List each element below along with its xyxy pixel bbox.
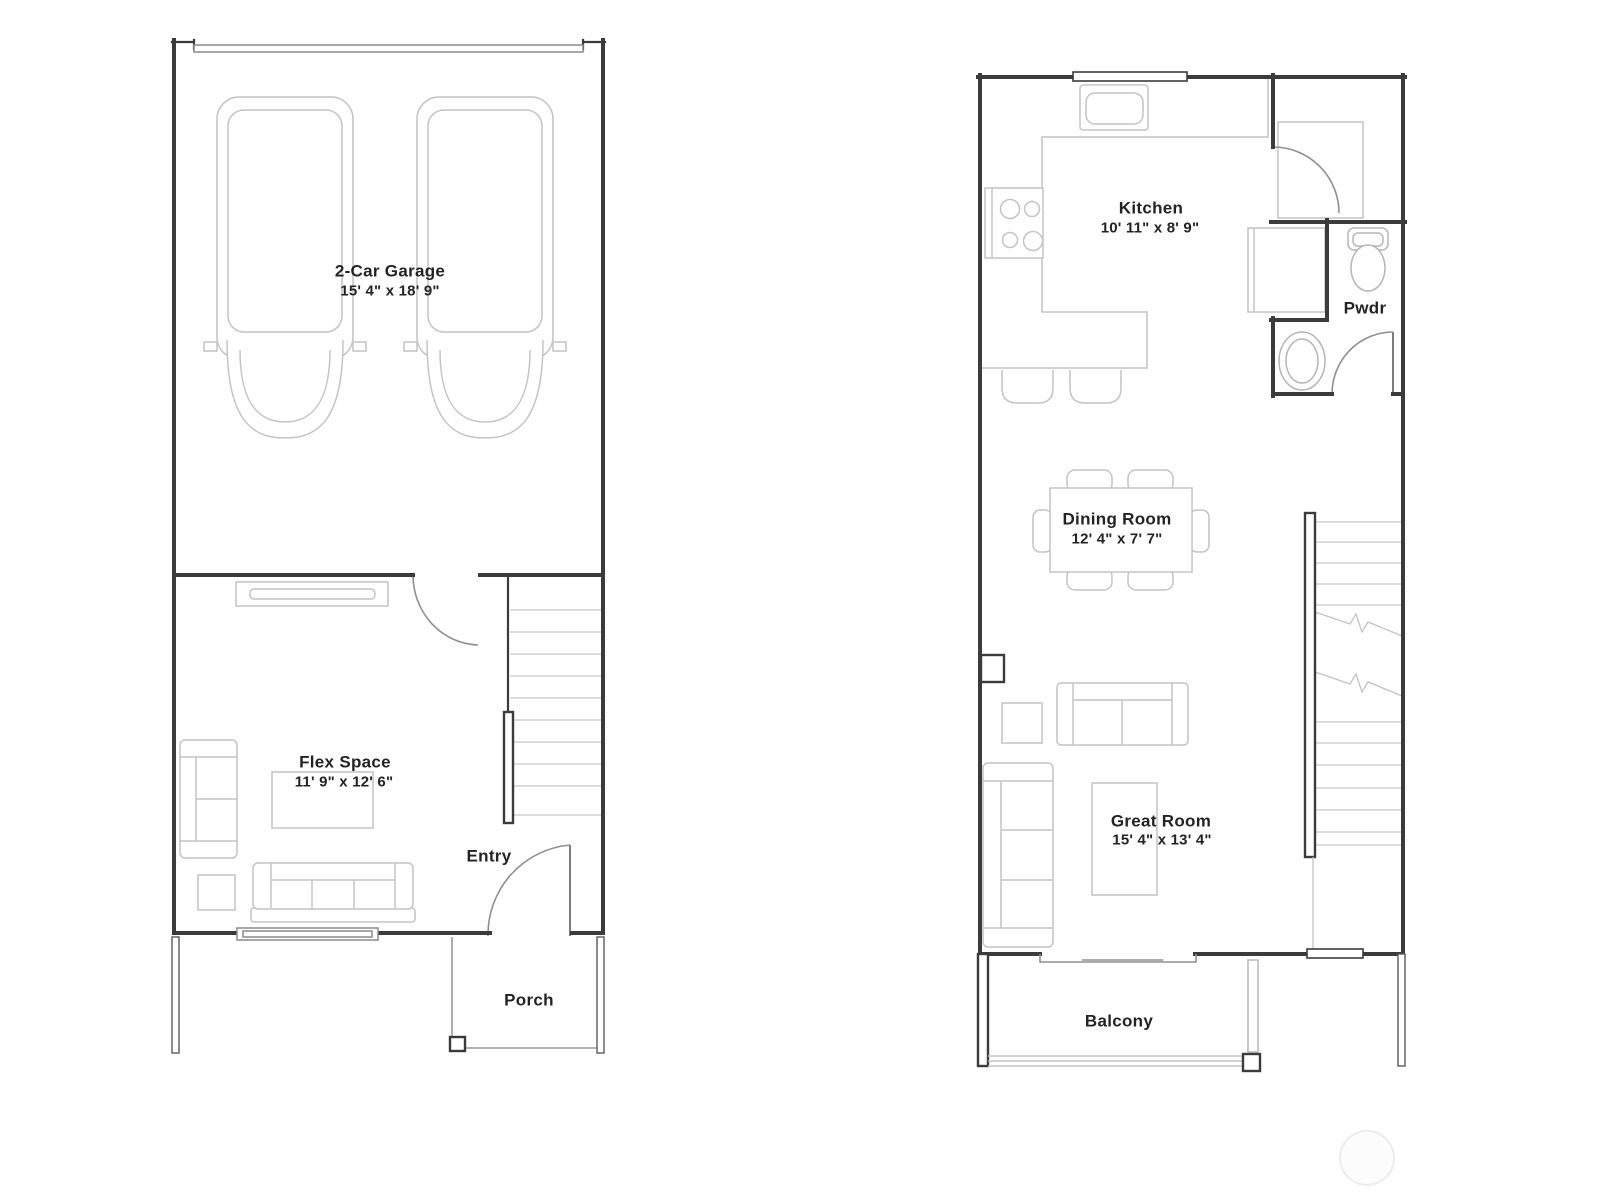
kitchen-dims: 10' 11" x 8' 9" <box>1101 220 1200 237</box>
stair-railing <box>504 712 513 823</box>
loveseat-icon <box>180 740 237 858</box>
garage-door <box>194 45 583 52</box>
great-room-label: Great Room <box>1111 812 1211 831</box>
kitchen-window <box>1073 72 1187 81</box>
flex-space-dims: 11' 9" x 12' 6" <box>295 774 394 791</box>
level-1-plan: 2-Car Garage 15' 4" x 18' 9" Flex Space … <box>172 40 605 1053</box>
entry-label: Entry <box>467 847 512 866</box>
dining-label: Dining Room <box>1062 510 1171 529</box>
great-room-window <box>1307 949 1363 958</box>
stairs <box>1305 513 1402 950</box>
stair-railing <box>1305 513 1315 857</box>
dining-dims: 12' 4" x 7' 7" <box>1072 531 1163 548</box>
watermark-circle <box>1340 1131 1394 1185</box>
stairs <box>504 577 601 823</box>
balcony-corner-post <box>1243 1054 1260 1071</box>
stair-break-line <box>1315 672 1402 696</box>
great-room-dims: 15' 4" x 13' 4" <box>1112 832 1211 849</box>
media-console-icon <box>236 582 388 606</box>
level-2-plan: Kitchen 10' 11" x 8' 9" Pwdr Dining Room… <box>978 72 1405 1071</box>
sofa-icon <box>983 763 1053 947</box>
side-table-icon <box>198 875 235 910</box>
loveseat-icon <box>1057 683 1188 745</box>
powder-label: Pwdr <box>1344 299 1387 318</box>
stair-break-line <box>1315 612 1402 636</box>
refrigerator-icon <box>1248 228 1325 312</box>
flex-space-label: Flex Space <box>299 753 391 772</box>
balcony-post <box>1248 960 1258 1052</box>
stove-icon <box>985 188 1043 258</box>
floorplan-page: 2-Car Garage 15' 4" x 18' 9" Flex Space … <box>0 0 1600 1200</box>
toilet-icon <box>1348 228 1388 291</box>
side-table-icon <box>1002 703 1042 743</box>
garage-dims: 15' 4" x 18' 9" <box>340 283 439 300</box>
floorplan-drawing: 2-Car Garage 15' 4" x 18' 9" Flex Space … <box>0 0 1600 1200</box>
pantry-closet-outline <box>1278 122 1363 218</box>
fireplace-niche <box>981 655 1004 682</box>
balcony-outline <box>978 954 1405 1071</box>
garage-door-swing <box>413 575 478 645</box>
porch-label: Porch <box>504 991 554 1010</box>
sink-icon <box>1080 85 1148 130</box>
garage-label: 2-Car Garage <box>335 262 445 281</box>
sofa-icon <box>251 863 415 922</box>
powder-door-swing <box>1332 332 1393 394</box>
balcony-label: Balcony <box>1085 1012 1153 1031</box>
pedestal-sink-icon <box>1279 332 1325 390</box>
pantry-door-swing <box>1273 147 1339 213</box>
bar-stool-icon <box>1002 370 1121 403</box>
kitchen-label: Kitchen <box>1119 199 1183 218</box>
